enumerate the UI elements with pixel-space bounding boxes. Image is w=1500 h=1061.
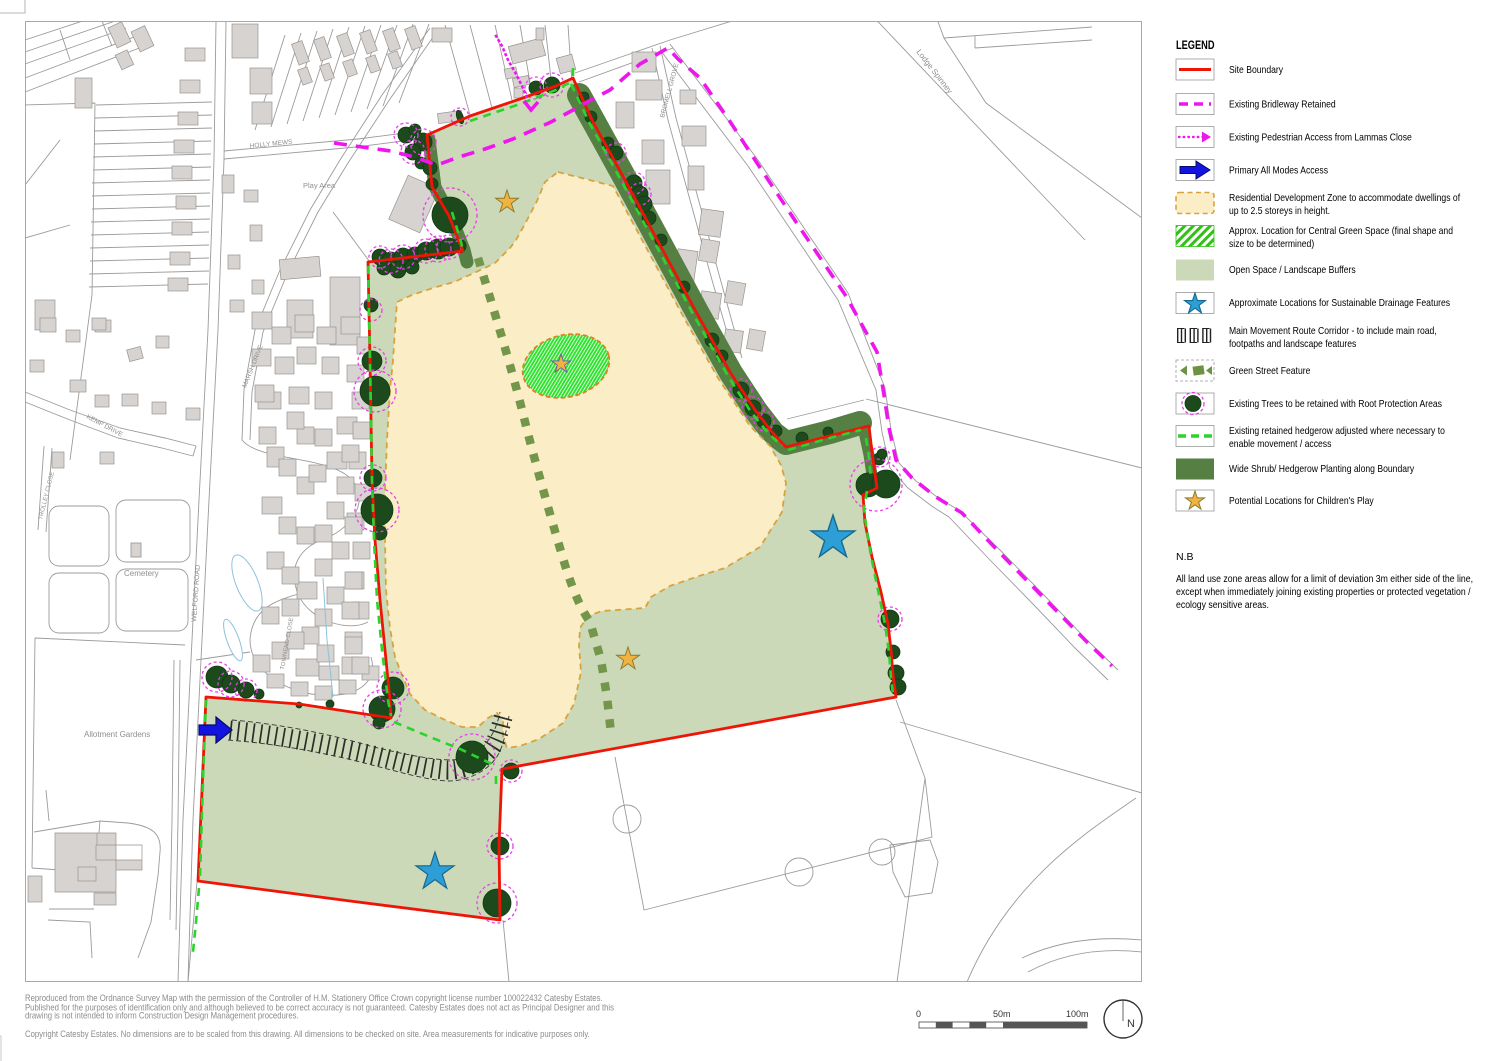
svg-text:Wide Shrub/ Hedgerow Planting: Wide Shrub/ Hedgerow Planting along Boun… — [1229, 463, 1415, 475]
svg-text:Existing Trees to be retained: Existing Trees to be retained with Root … — [1229, 398, 1442, 410]
svg-text:100m: 100m — [1066, 1009, 1089, 1019]
svg-text:drawing is not intended to inf: drawing is not intended to inform Constr… — [25, 1011, 299, 1021]
svg-text:ecology sensitive areas.: ecology sensitive areas. — [1176, 600, 1269, 611]
svg-text:Existing Pedestrian Access fro: Existing Pedestrian Access from Lammas C… — [1229, 132, 1412, 144]
svg-text:footpaths and landscape featur: footpaths and landscape features — [1229, 338, 1356, 350]
svg-text:Allotment Gardens: Allotment Gardens — [84, 730, 150, 739]
svg-text:Approximate Locations for Sust: Approximate Locations for Sustainable Dr… — [1229, 297, 1450, 309]
svg-text:Play Area: Play Area — [303, 181, 336, 190]
svg-text:size to be determined): size to be determined) — [1229, 238, 1314, 250]
svg-text:Primary All Modes Access: Primary All Modes Access — [1229, 165, 1328, 177]
svg-text:Copyright Catesby Estates. No: Copyright Catesby Estates. No dimensions… — [25, 1029, 590, 1039]
svg-text:All land use zone areas allow: All land use zone areas allow for a limi… — [1176, 574, 1473, 585]
svg-text:Existing Bridleway Retained: Existing Bridleway Retained — [1229, 99, 1336, 111]
svg-text:Site Boundary: Site Boundary — [1229, 64, 1284, 76]
svg-text:N: N — [1127, 1018, 1135, 1030]
svg-text:Green Street Feature: Green Street Feature — [1229, 365, 1311, 377]
svg-text:Main Movement Route Corridor -: Main Movement Route Corridor - to includ… — [1229, 325, 1437, 337]
svg-text:50m: 50m — [993, 1009, 1011, 1019]
svg-text:Cemetery: Cemetery — [124, 569, 159, 578]
svg-text:enable movement / access: enable movement / access — [1229, 438, 1331, 450]
svg-text:Potential Locations for Childr: Potential Locations for Children's Play — [1229, 495, 1374, 507]
svg-text:Residential Development Zone t: Residential Development Zone to accommod… — [1229, 192, 1460, 204]
svg-text:Existing retained hedgerow adj: Existing retained hedgerow adjusted wher… — [1229, 425, 1445, 437]
svg-text:except when immediately joinin: except when immediately joining existing… — [1176, 587, 1471, 598]
svg-text:up to 2.5 storeys in height.: up to 2.5 storeys in height. — [1229, 205, 1330, 217]
svg-text:Approx. Location for Central G: Approx. Location for Central Green Space… — [1229, 225, 1453, 237]
svg-text:Reproduced from the Ordnance S: Reproduced from the Ordnance Survey Map … — [25, 993, 603, 1003]
svg-text:LEGEND: LEGEND — [1176, 38, 1215, 52]
svg-text:Open Space / Landscape Buffers: Open Space / Landscape Buffers — [1229, 264, 1356, 276]
svg-text:N.B: N.B — [1176, 551, 1194, 563]
svg-text:0: 0 — [916, 1009, 921, 1019]
